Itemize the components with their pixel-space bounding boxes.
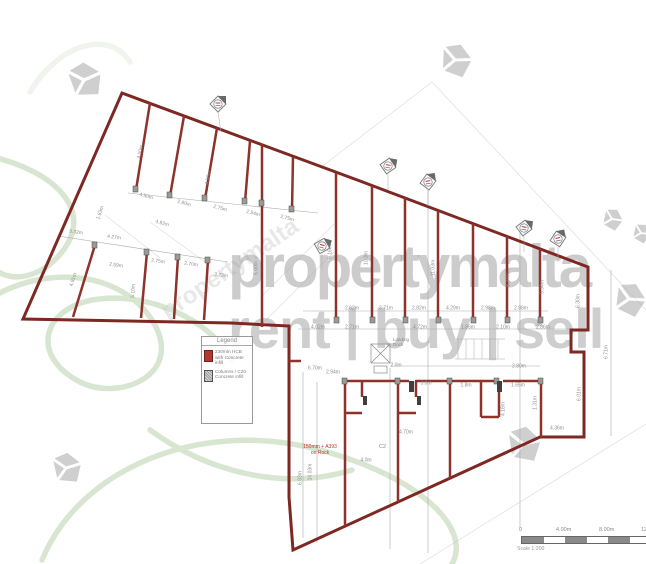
stair-hatch xyxy=(455,339,505,359)
logo-shield-icon xyxy=(432,37,478,82)
section-marker-icon xyxy=(379,157,398,176)
scale-tick-label: 0 xyxy=(519,527,522,533)
scale-segment xyxy=(522,537,544,543)
section-marker-icon xyxy=(419,173,437,191)
logo-shield-icon xyxy=(46,448,86,487)
green-logo-watermark xyxy=(0,44,456,564)
hcb-wall-swatch-icon xyxy=(204,350,213,362)
logo-shield-icon xyxy=(597,204,626,233)
logo-shield-icon xyxy=(628,220,646,246)
legend-title: Legend xyxy=(202,337,252,346)
column-ref-label: C2 xyxy=(379,444,386,450)
scale-tick-label: 4.00m xyxy=(556,527,571,533)
legend-item-columns: Columns / C20 Concrete infill xyxy=(203,369,251,382)
shaft-symbol xyxy=(371,344,390,373)
section-marker-icon xyxy=(515,219,533,237)
section-marker-icon xyxy=(312,236,332,256)
loading-dock-label: Loading Dock xyxy=(393,337,419,347)
legend-item-label: 230mm HCB with Concrete infill xyxy=(215,349,251,366)
floor-plan-drawing xyxy=(0,0,646,564)
scale-bar-segments xyxy=(521,536,646,544)
scale-segment xyxy=(565,537,587,543)
slab-note-line2: on Rock xyxy=(292,450,348,456)
section-markers xyxy=(210,96,567,270)
scale-segment xyxy=(630,537,646,543)
section-marker-icon xyxy=(549,230,568,249)
legend-box: Legend 230mm HCB with Concrete infill Co… xyxy=(201,336,253,424)
legend-item-hcb: 230mm HCB with Concrete infill xyxy=(203,349,251,366)
logo-shield-icon xyxy=(606,276,646,322)
slab-note: 150mm + A393 on Rock xyxy=(292,444,348,456)
section-marker-icon xyxy=(210,96,226,112)
scale-tick-label: 12.00m xyxy=(641,527,646,533)
logo-shield-icon xyxy=(62,59,106,102)
scale-caption: Scale 1:200 xyxy=(517,546,544,552)
legend-item-label: Columns / C20 Concrete infill xyxy=(215,369,251,382)
scale-segment xyxy=(608,537,630,543)
scale-bar: 0 4.00m 8.00m 12.00m Scale 1:200 xyxy=(515,527,646,557)
scale-segment xyxy=(544,537,566,543)
floor-plan-page: propertymalta propertymalta rent | buy |… xyxy=(0,0,646,564)
column-swatch-icon xyxy=(204,370,213,382)
scale-segment xyxy=(587,537,609,543)
scale-tick-label: 8.00m xyxy=(599,527,614,533)
